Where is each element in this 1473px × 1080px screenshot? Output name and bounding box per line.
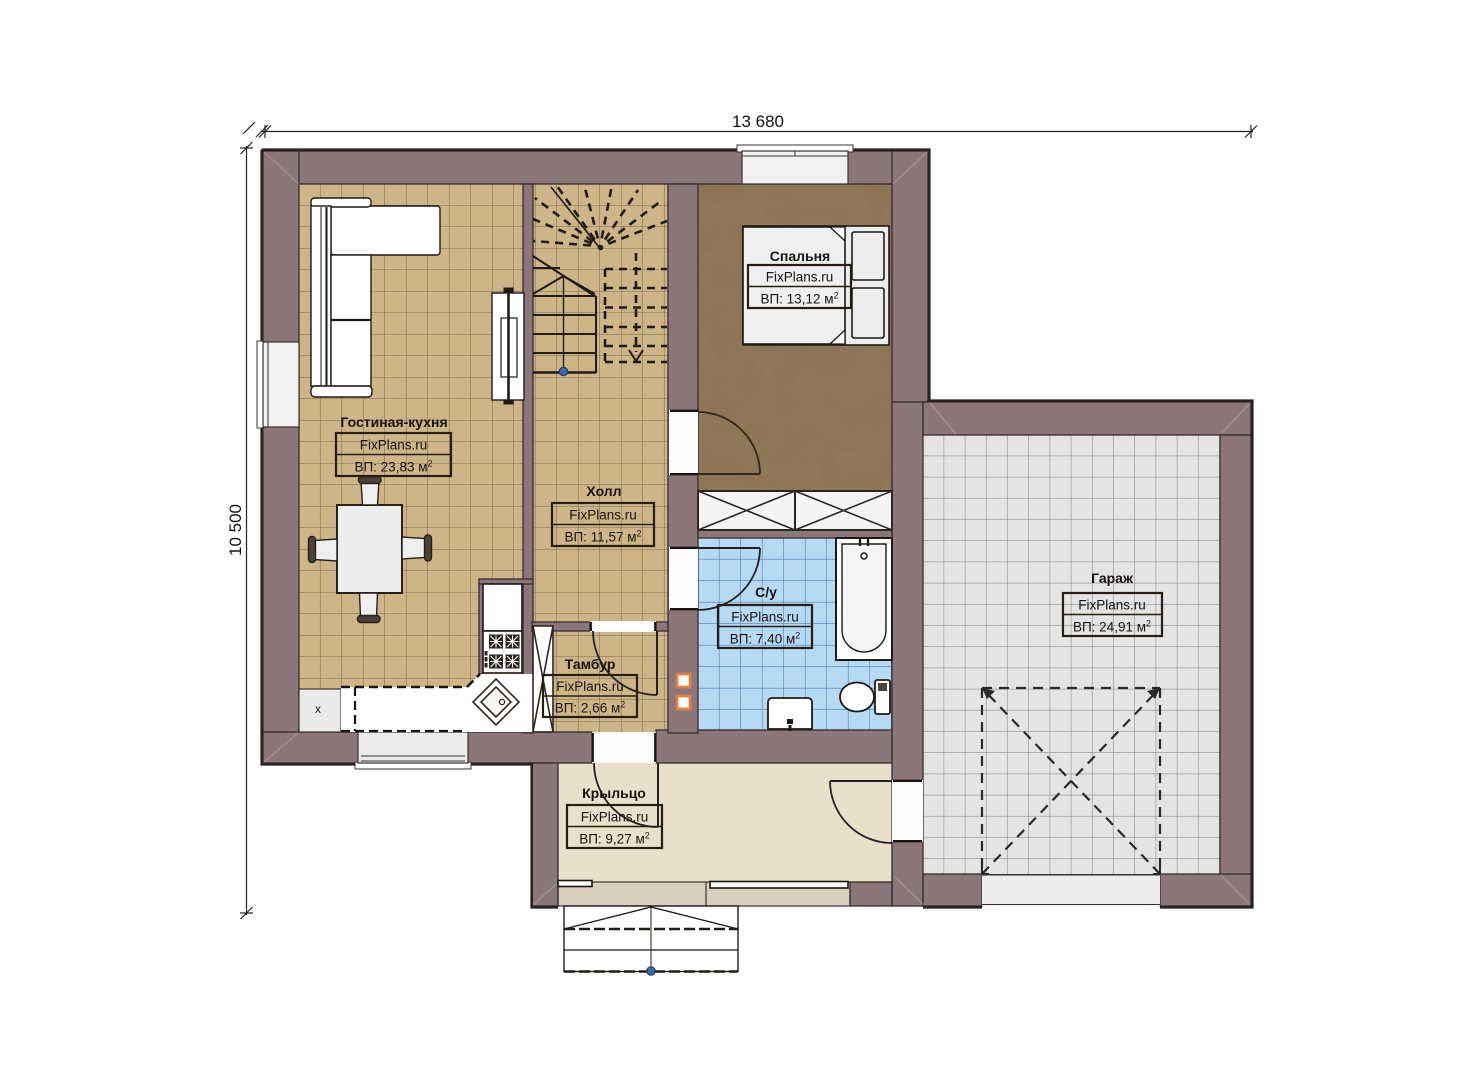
svg-text:ВП: 9,27 м2: ВП: 9,27 м2 xyxy=(579,831,650,847)
svg-text:ВП: 7,40 м2: ВП: 7,40 м2 xyxy=(730,631,801,647)
svg-text:FixPlans.ru: FixPlans.ru xyxy=(360,438,428,453)
svg-text:FixPlans.ru: FixPlans.ru xyxy=(766,270,834,285)
svg-text:FixPlans.ru: FixPlans.ru xyxy=(569,508,637,523)
svg-text:ВП: 2,66 м2: ВП: 2,66 м2 xyxy=(555,700,626,716)
svg-text:FixPlans.ru: FixPlans.ru xyxy=(556,679,624,694)
svg-text:FixPlans.ru: FixPlans.ru xyxy=(1078,598,1146,613)
svg-text:Спальня: Спальня xyxy=(770,248,830,264)
svg-text:Крыльцо: Крыльцо xyxy=(582,785,646,801)
svg-text:13 680: 13 680 xyxy=(732,112,784,131)
svg-text:10 500: 10 500 xyxy=(226,504,245,556)
svg-text:ВП: 24,91 м2: ВП: 24,91 м2 xyxy=(1073,619,1151,635)
svg-text:Холл: Холл xyxy=(586,483,621,499)
svg-text:С/у: С/у xyxy=(755,584,777,600)
svg-text:Гостиная-кухня: Гостиная-кухня xyxy=(340,414,447,430)
svg-text:ВП: 23,83 м2: ВП: 23,83 м2 xyxy=(354,459,432,475)
svg-text:FixPlans.ru: FixPlans.ru xyxy=(581,810,649,825)
svg-text:FixPlans.ru: FixPlans.ru xyxy=(731,610,799,625)
svg-text:Тамбур: Тамбур xyxy=(565,656,616,672)
svg-text:Гараж: Гараж xyxy=(1091,570,1134,586)
svg-text:x: x xyxy=(315,702,321,716)
svg-text:ВП: 13,12 м2: ВП: 13,12 м2 xyxy=(760,291,838,307)
svg-text:ВП: 11,57 м2: ВП: 11,57 м2 xyxy=(564,529,641,545)
